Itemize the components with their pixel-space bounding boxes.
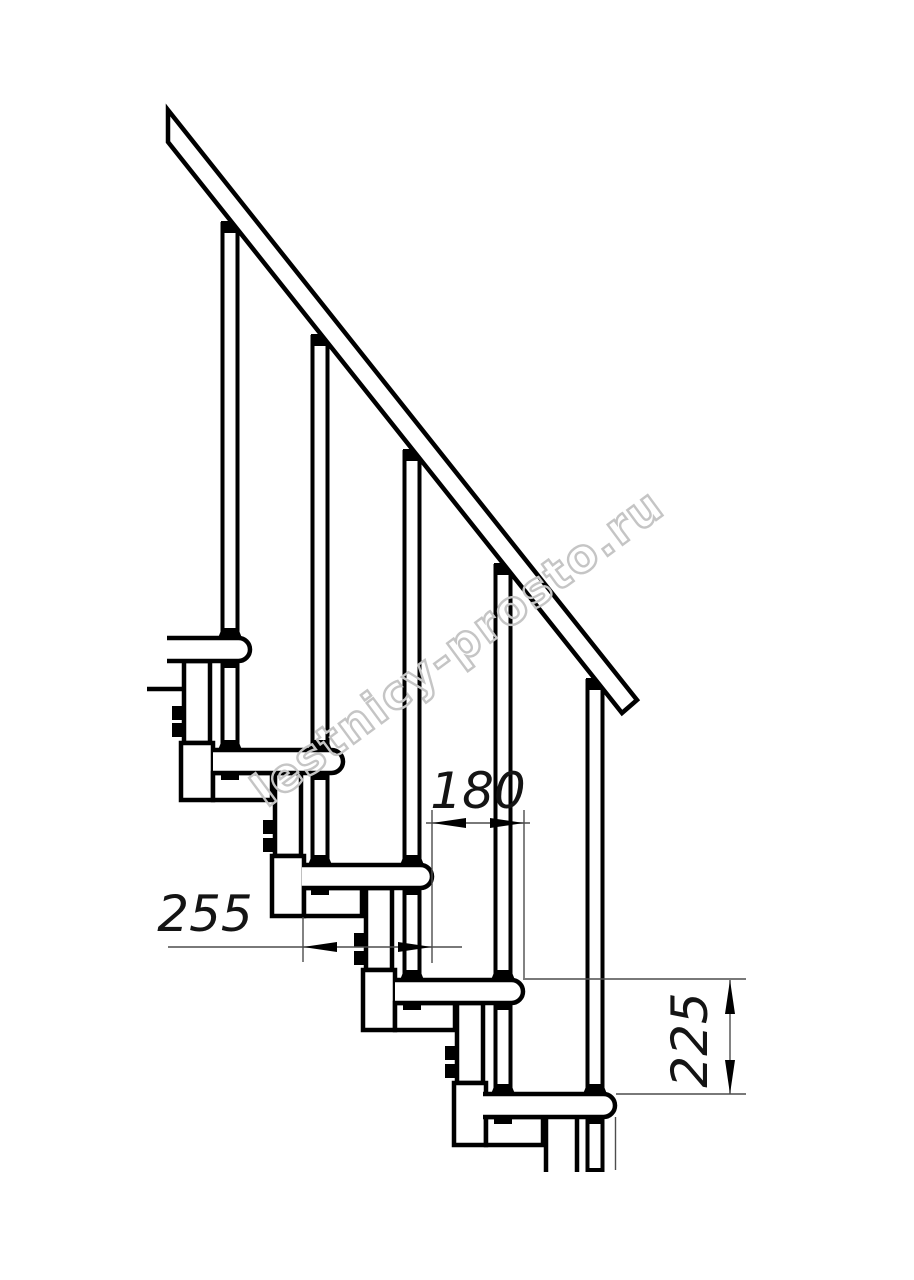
bolt-icon bbox=[445, 1064, 457, 1078]
step-tread-1 bbox=[167, 638, 250, 661]
nut-icon bbox=[494, 1003, 512, 1010]
dimension-label-225: 225 bbox=[661, 992, 719, 1087]
bolt-icon bbox=[354, 951, 366, 965]
baluster-1 bbox=[223, 224, 238, 750]
flange-icon bbox=[400, 970, 424, 980]
nut-icon bbox=[494, 1117, 512, 1124]
flange-icon bbox=[308, 855, 332, 865]
flange-icon bbox=[400, 855, 424, 865]
bolt-icon bbox=[172, 723, 184, 737]
nut-icon bbox=[221, 661, 239, 668]
dimension-label-180: 180 bbox=[430, 762, 525, 820]
flange-icon bbox=[218, 628, 242, 638]
flange-icon bbox=[491, 970, 515, 980]
step-tread-3 bbox=[302, 865, 432, 888]
nut-icon bbox=[586, 1117, 604, 1124]
step-tread-5 bbox=[483, 1094, 615, 1117]
bolt-icon bbox=[354, 933, 366, 947]
flange-icon bbox=[491, 1084, 515, 1094]
bolt-icon bbox=[263, 838, 275, 852]
nut-icon bbox=[311, 888, 329, 895]
arrow-up-icon bbox=[725, 980, 735, 1014]
staircase-technical-drawing: 180 255 225 lestnicy-prosto.ru bbox=[0, 0, 914, 1280]
flange-icon bbox=[218, 740, 242, 750]
support-column-5 bbox=[546, 1117, 577, 1172]
step-tread-4 bbox=[395, 980, 523, 1003]
flange-icon bbox=[583, 1084, 607, 1094]
arrow-left-icon bbox=[303, 942, 337, 952]
dimension-180: 180 bbox=[426, 762, 530, 978]
bolt-icon bbox=[263, 820, 275, 834]
drawing-page: 180 255 225 lestnicy-prosto.ru bbox=[0, 0, 914, 1280]
bolt-icon bbox=[445, 1046, 457, 1060]
nut-icon bbox=[403, 1003, 421, 1010]
dimension-225: 225 bbox=[523, 979, 746, 1170]
nut-icon bbox=[403, 888, 421, 895]
nut-icon bbox=[221, 773, 239, 780]
dimension-label-255: 255 bbox=[157, 885, 252, 943]
arrow-down-icon bbox=[725, 1060, 735, 1094]
bolt-icon bbox=[172, 706, 184, 720]
